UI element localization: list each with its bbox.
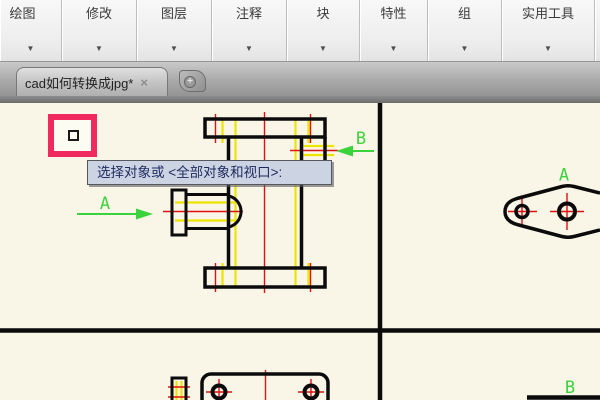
ribbon-panel-label: 块 <box>287 3 359 22</box>
chevron-down-icon[interactable]: ▼ <box>212 45 286 53</box>
close-icon[interactable]: × <box>140 76 148 89</box>
ribbon-panel-modify[interactable]: 修改 ▼ <box>62 0 137 61</box>
drawing-canvas[interactable]: A B A <box>0 103 600 400</box>
front-view-tee <box>163 112 338 293</box>
file-tab-bar: cad如何转换成jpg* × + <box>0 62 600 96</box>
chevron-down-icon[interactable]: ▼ <box>137 45 211 53</box>
ribbon-panel-utilities[interactable]: 实用工具 ▼ <box>502 0 595 61</box>
section-arrow-b: B <box>336 129 374 157</box>
tab-bar-lower-strip <box>0 96 600 103</box>
ribbon: 绘图 ▼ 修改 ▼ 图层 ▼ 注释 ▼ 块 ▼ 特性 ▼ 组 ▼ 实用工具 ▼ <box>0 0 600 62</box>
pickbox-cursor <box>68 130 79 141</box>
ribbon-panel-layers[interactable]: 图层 ▼ <box>137 0 212 61</box>
section-arrow-a: A <box>77 194 153 220</box>
ribbon-panel-label: 图层 <box>137 3 211 22</box>
ribbon-panel-label: 注释 <box>212 3 286 22</box>
chevron-down-icon[interactable]: ▼ <box>502 45 594 53</box>
chevron-down-icon[interactable]: ▼ <box>62 45 136 53</box>
ribbon-panel-label: 特性 <box>360 3 427 22</box>
ribbon-panel-partial <box>595 0 600 61</box>
ribbon-panel-block[interactable]: 块 ▼ <box>287 0 360 61</box>
chevron-down-icon[interactable]: ▼ <box>0 45 61 53</box>
gasket-view-a: A <box>505 166 600 238</box>
tab-title: cad如何转换成jpg* <box>25 73 133 92</box>
ribbon-panel-label: 组 <box>428 3 501 22</box>
ribbon-panel-label: 修改 <box>62 3 136 22</box>
section-label-b-bottom: B <box>565 378 575 398</box>
ribbon-panel-draw[interactable]: 绘图 ▼ <box>0 0 62 61</box>
hidden-lines <box>175 120 334 286</box>
ribbon-panel-annotate[interactable]: 注释 ▼ <box>212 0 287 61</box>
new-drawing-button[interactable]: + <box>179 70 206 92</box>
ribbon-panel-label: 绘图 <box>0 3 45 22</box>
section-label-a-side: A <box>559 166 569 186</box>
tab-active-drawing[interactable]: cad如何转换成jpg* × <box>16 67 168 96</box>
section-view-b-partial: B <box>527 378 600 398</box>
section-label-b: B <box>356 129 366 149</box>
section-label-a: A <box>100 194 110 214</box>
ribbon-panel-properties[interactable]: 特性 ▼ <box>360 0 428 61</box>
plus-icon: + <box>184 76 196 88</box>
chevron-down-icon[interactable]: ▼ <box>428 45 501 53</box>
bottom-views <box>168 370 328 400</box>
command-tooltip: 选择对象或 <全部对象和视口>: <box>87 160 332 185</box>
chevron-down-icon[interactable]: ▼ <box>287 45 359 53</box>
ribbon-panel-group[interactable]: 组 ▼ <box>428 0 502 61</box>
ribbon-panel-label: 实用工具 <box>502 3 594 22</box>
chevron-down-icon[interactable]: ▼ <box>360 45 427 53</box>
